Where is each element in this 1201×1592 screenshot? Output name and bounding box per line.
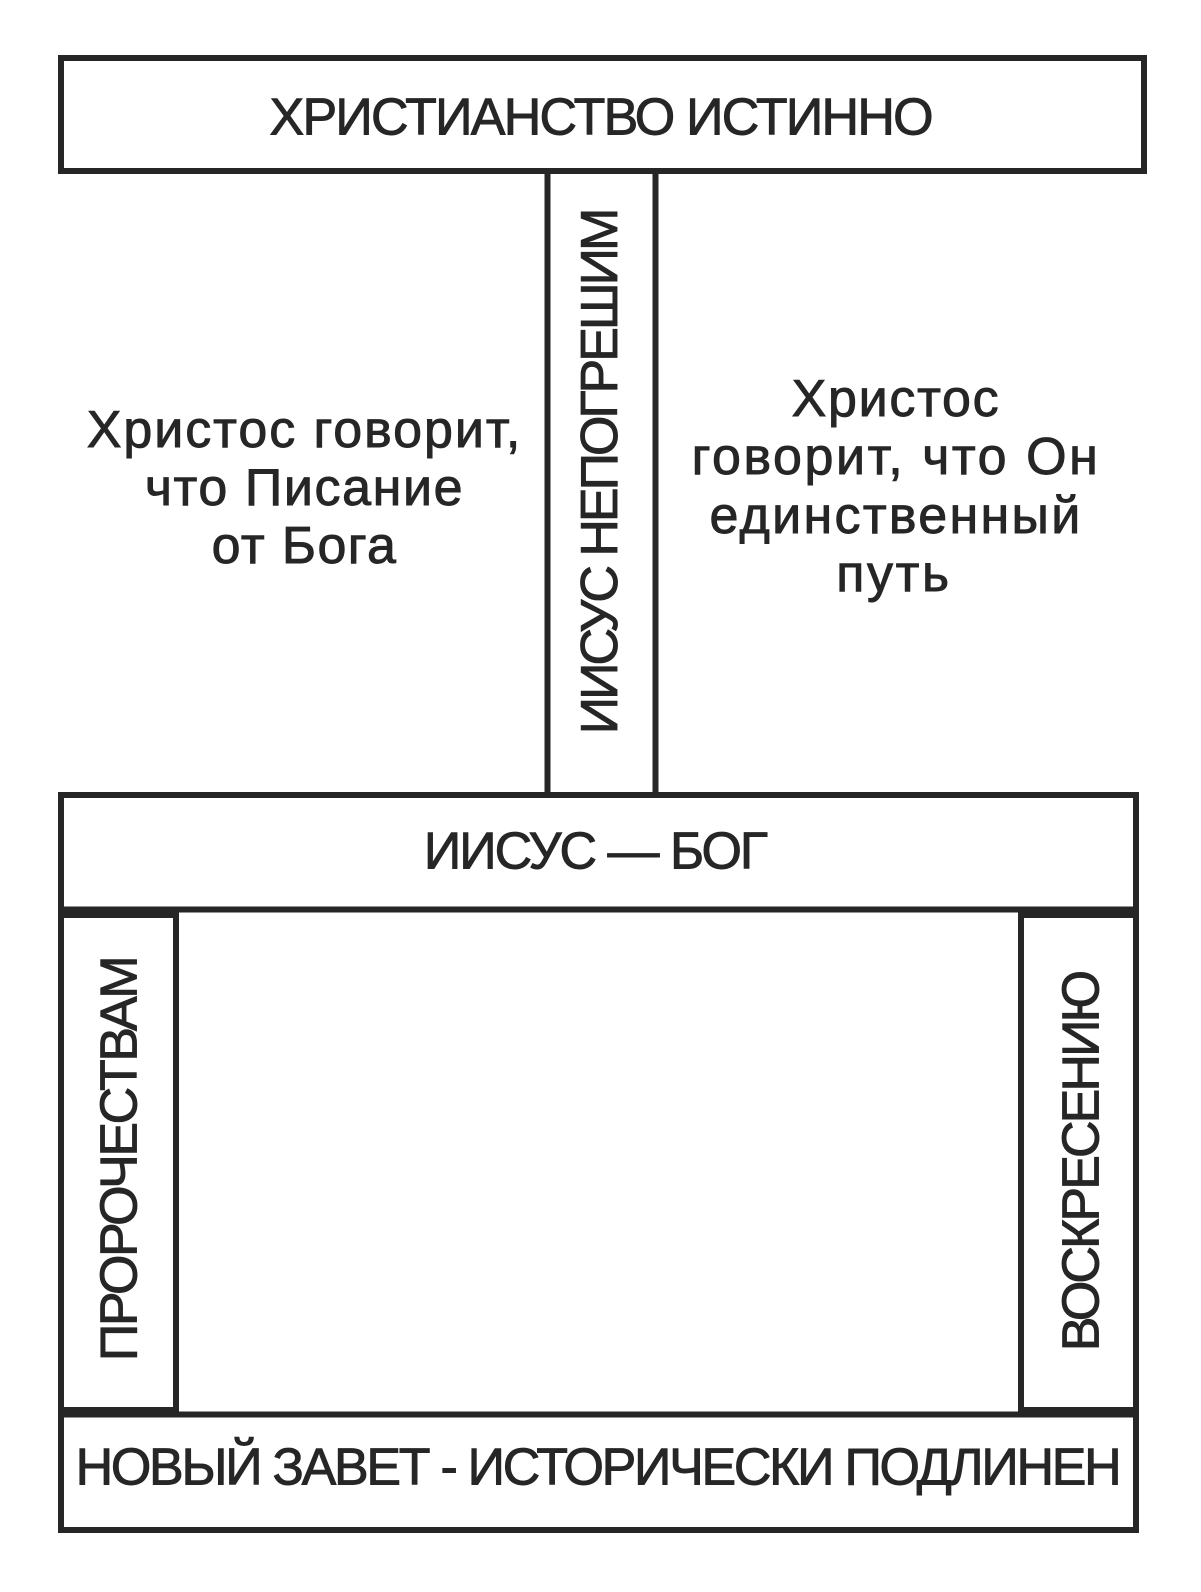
svg-text:Христос говорит,: Христос говорит, — [87, 401, 523, 459]
svg-text:ПРОРОЧЕСТВАМ: ПРОРОЧЕСТВАМ — [90, 958, 148, 1361]
svg-text:ХРИСТИАНСТВО ИСТИННО: ХРИСТИАНСТВО ИСТИННО — [270, 89, 932, 147]
svg-text:Христос: Христос — [792, 370, 1001, 428]
svg-text:путь: путь — [836, 545, 951, 603]
svg-text:единственный: единственный — [709, 487, 1082, 545]
svg-text:от Бога: от Бога — [212, 517, 398, 575]
svg-text:говорит, что Он: говорит, что Он — [692, 428, 1101, 486]
svg-text:ВОСКРЕСЕНИЮ: ВОСКРЕСЕНИЮ — [1053, 971, 1111, 1351]
svg-text:ИИСУС — БОГ: ИИСУС — БОГ — [424, 823, 768, 881]
svg-text:НОВЫЙ ЗАВЕТ - ИСТОРИЧЕСКИ ПОДЛ: НОВЫЙ ЗАВЕТ - ИСТОРИЧЕСКИ ПОДЛИНЕН — [76, 1438, 1120, 1497]
svg-text:что Писание: что Писание — [145, 459, 464, 517]
svg-text:ИИСУС НЕПОГРЕШИМ: ИИСУС НЕПОГРЕШИМ — [571, 211, 629, 735]
